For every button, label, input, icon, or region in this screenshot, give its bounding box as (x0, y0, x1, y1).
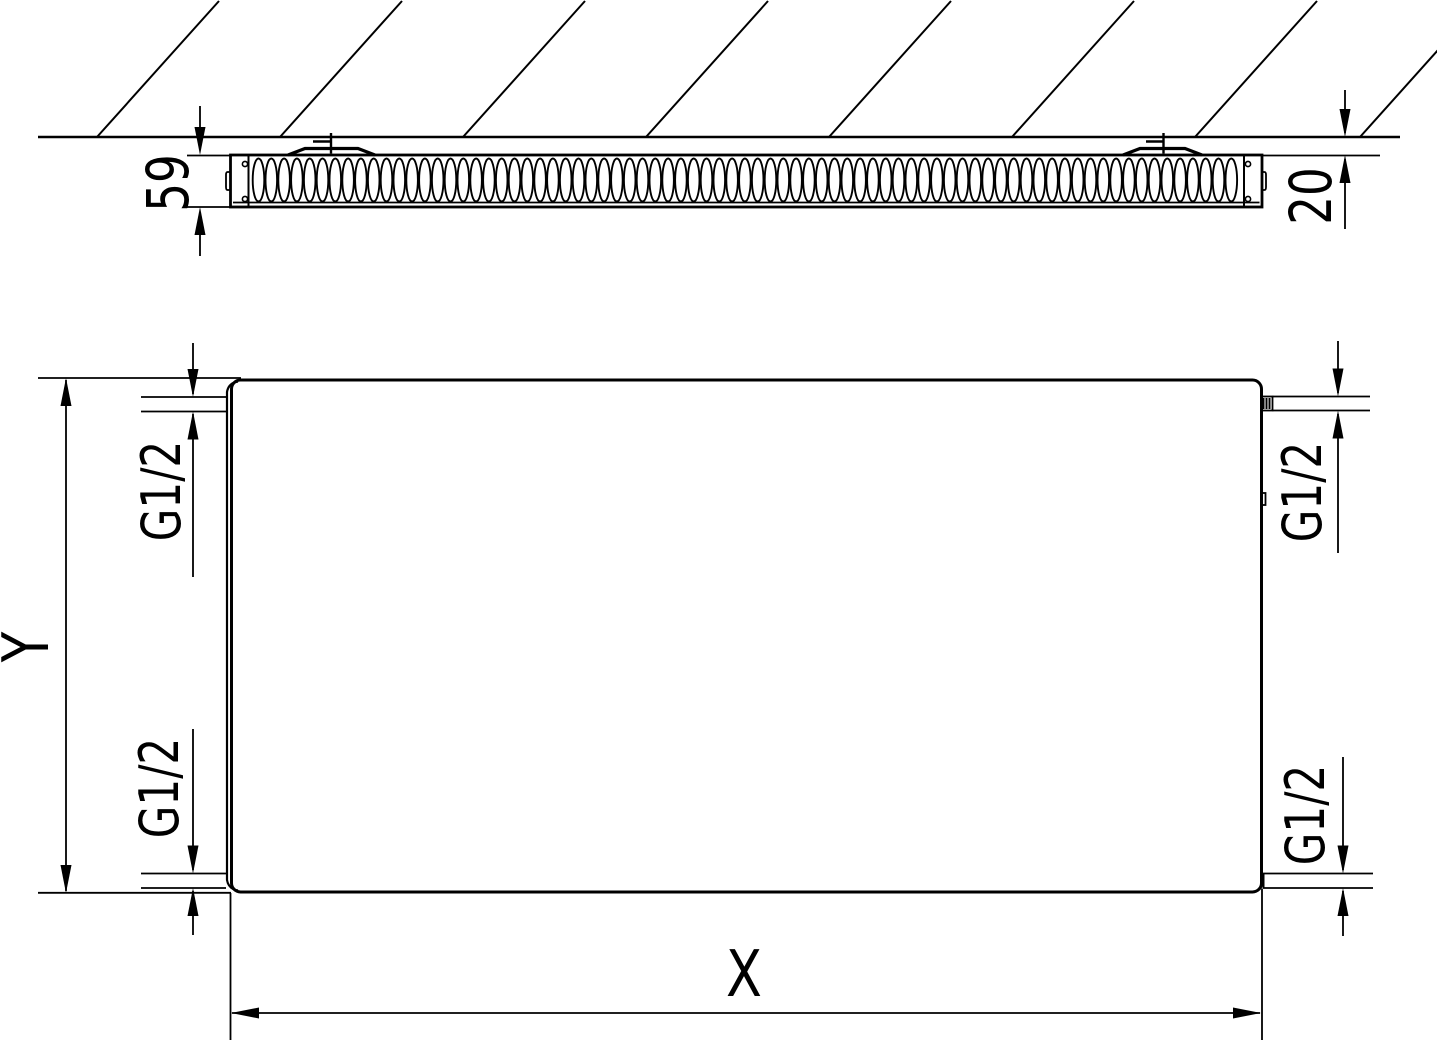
fin-loop (803, 159, 815, 202)
fin-loop (701, 159, 713, 202)
fin-loop (1213, 159, 1225, 202)
fin-loop (675, 159, 687, 202)
extension-line (1263, 874, 1373, 889)
fin-loop (560, 159, 572, 202)
fin-loop (355, 159, 367, 202)
fin-loop (1200, 159, 1212, 202)
arrowhead (1340, 109, 1351, 137)
arrowhead (1233, 1008, 1261, 1019)
fin-loop (1149, 159, 1161, 202)
arrowhead (188, 846, 199, 874)
arrowhead (61, 865, 72, 893)
hatch-line (463, 1, 585, 137)
hatch-line (1012, 1, 1134, 137)
fin-loop (982, 159, 994, 202)
hatch-line (1360, 1, 1437, 137)
fin-loop (496, 159, 508, 202)
fin-loop (330, 159, 342, 202)
fin-loop (918, 159, 930, 202)
radiator-front-view (227, 380, 1273, 892)
wall-hatching (97, 1, 1437, 137)
fin-loop (458, 159, 470, 202)
fin-loop (266, 159, 278, 202)
fin-loop (419, 159, 431, 202)
fin-loop (931, 159, 943, 202)
fin-loop (406, 159, 418, 202)
connection-stub-top-right (1261, 397, 1273, 411)
fin-loop (1021, 159, 1033, 202)
fin-loop (624, 159, 636, 202)
fin-loop (304, 159, 316, 202)
end-cap-detail (1245, 196, 1250, 201)
hatch-line (1195, 1, 1317, 137)
fin-loop (778, 159, 790, 202)
fin-loop (253, 159, 265, 202)
radiator-technical-drawing: 59 20 G1/2 G1/2 G1/2 G1/2 Y X (0, 0, 1437, 1049)
fin-loop (995, 159, 1007, 202)
fin-loop (483, 159, 495, 202)
hatch-line (280, 1, 402, 137)
fin-loop (842, 159, 854, 202)
fin-loop (688, 159, 700, 202)
arrowhead (61, 378, 72, 406)
end-cap-detail (242, 196, 247, 201)
fin-loop (1046, 159, 1058, 202)
fin-loop (1136, 159, 1148, 202)
fin-loop (278, 159, 290, 202)
wall-gap-dimension-label: 20 (1282, 167, 1340, 225)
fin-loop (534, 159, 546, 202)
fin-loop (790, 159, 802, 202)
fin-loop (317, 159, 329, 202)
fin-loop (1226, 159, 1238, 202)
fin-loop (509, 159, 521, 202)
arrowhead (195, 127, 206, 155)
vent-nub (1261, 493, 1266, 505)
extension-line (141, 874, 226, 889)
fin-loop (573, 159, 585, 202)
fin-loop (944, 159, 956, 202)
width-dimension-label: X (726, 943, 762, 1007)
fin-loop (637, 159, 649, 202)
fin-loop (752, 159, 764, 202)
fin-loop (1174, 159, 1186, 202)
fin-loop (1008, 159, 1020, 202)
fin-loop (970, 159, 982, 202)
fin-loop (598, 159, 610, 202)
fin-loop (586, 159, 598, 202)
fin-loop (368, 159, 380, 202)
fin-loop (445, 159, 457, 202)
arrowhead (188, 412, 199, 440)
height-dimension-label: Y (0, 632, 59, 662)
end-cap-detail (242, 161, 247, 166)
radiator-top-view (226, 133, 1266, 207)
arrowhead (188, 369, 199, 397)
connection-label-top-right: G1/2 (1276, 442, 1330, 542)
wall-section (38, 1, 1437, 137)
radiator-panel-outline (232, 380, 1262, 892)
fin-loop (906, 159, 918, 202)
drawing-canvas (0, 0, 1437, 1049)
fin-loop (522, 159, 534, 202)
arrowhead (1333, 411, 1344, 439)
extension-line (141, 397, 228, 412)
fin-loop (1034, 159, 1046, 202)
fin-loop (342, 159, 354, 202)
fin-loop (1085, 159, 1097, 202)
connection-label-bottom-left: G1/2 (133, 738, 187, 838)
fin-loop (1123, 159, 1135, 202)
hatch-line (646, 1, 768, 137)
fin-loop (714, 159, 726, 202)
fin-loop (662, 159, 674, 202)
end-cap-detail (1245, 161, 1250, 166)
fin-loop (739, 159, 751, 202)
fin-loop (1162, 159, 1174, 202)
depth-dimension-label: 59 (139, 154, 197, 212)
hatch-line (829, 1, 951, 137)
connection-label-top-left: G1/2 (135, 441, 189, 541)
fin-loop (470, 159, 482, 202)
arrowhead (1338, 888, 1349, 916)
fin-loop (957, 159, 969, 202)
fin-loop (1187, 159, 1199, 202)
fin-loop (893, 159, 905, 202)
fin-loop (1110, 159, 1122, 202)
fin-loop (726, 159, 738, 202)
fin-loop (1072, 159, 1084, 202)
fin-loop (765, 159, 777, 202)
fin-loop (880, 159, 892, 202)
fin-loop (394, 159, 406, 202)
arrowhead (1333, 369, 1344, 397)
fin-loop (816, 159, 828, 202)
fin-loop (867, 159, 879, 202)
fin-loop (381, 159, 393, 202)
fin-loop (650, 159, 662, 202)
fin-loop (547, 159, 559, 202)
convector-fins (253, 159, 1237, 202)
fin-loop (1098, 159, 1110, 202)
fin-loop (854, 159, 866, 202)
fin-loop (829, 159, 841, 202)
arrowhead (1338, 846, 1349, 874)
fin-loop (1059, 159, 1071, 202)
extension-line (1273, 397, 1371, 411)
arrowhead (231, 1008, 259, 1019)
connection-label-bottom-right: G1/2 (1279, 765, 1333, 865)
fin-loop (432, 159, 444, 202)
fin-loop (291, 159, 303, 202)
fin-loop (611, 159, 623, 202)
